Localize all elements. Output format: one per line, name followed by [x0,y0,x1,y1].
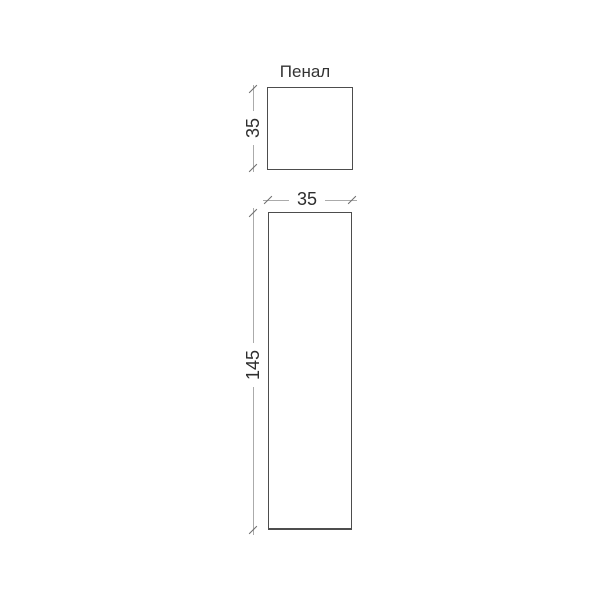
top-view-depth-dimension-label: 35 [244,111,262,145]
top-view-outline [267,87,353,170]
drawing-title: Пенал [280,62,330,81]
front-view-outline [268,212,352,530]
front-view-height-dimension-label: 145 [244,343,262,387]
front-view-width-dimension-label: 35 [289,190,325,208]
technical-drawing-canvas: Пенал 35 35 145 [0,0,600,600]
